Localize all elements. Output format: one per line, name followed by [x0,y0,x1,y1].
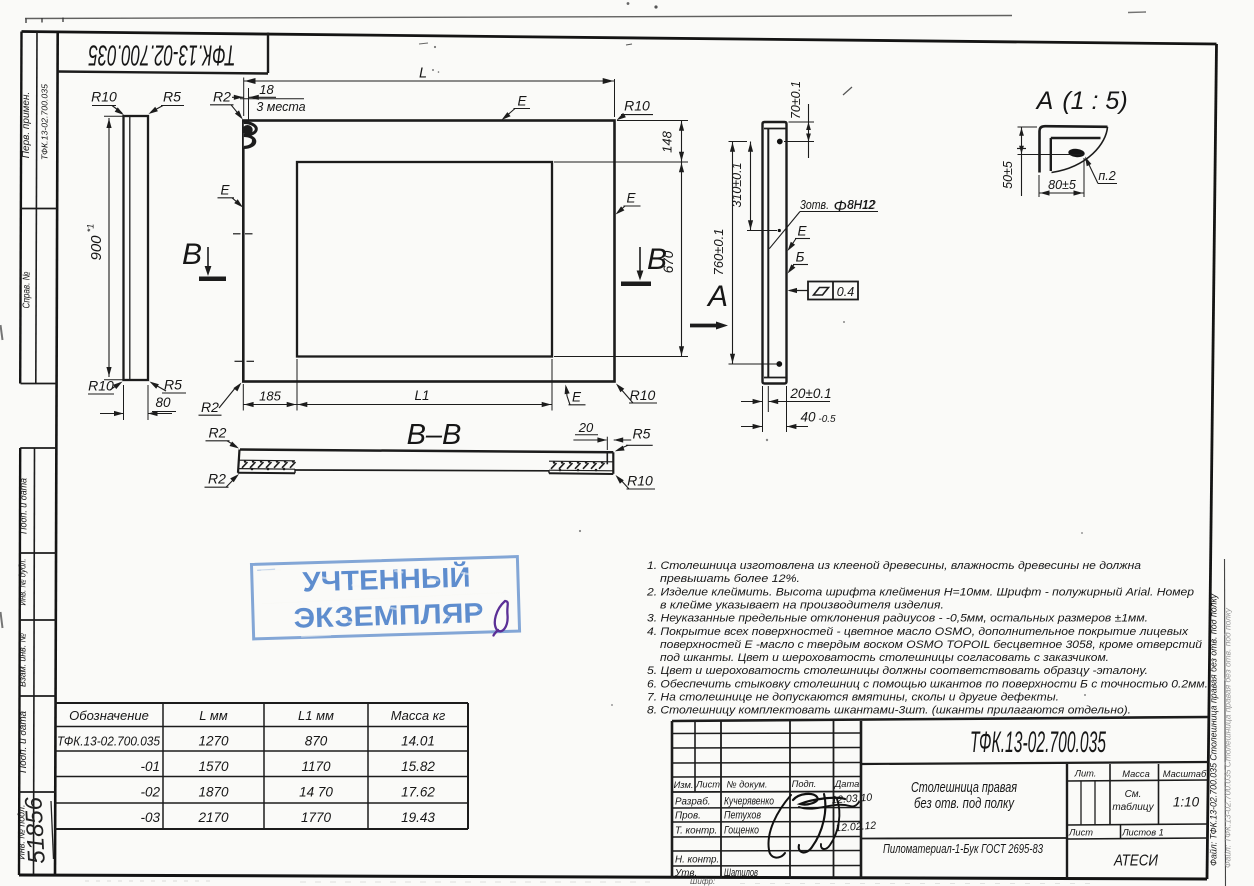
svg-text:51856: 51856 [20,796,50,865]
svg-text:E: E [220,183,230,198]
svg-text:R5: R5 [164,377,182,393]
svg-text:Масса кг: Масса кг [391,708,446,723]
svg-text:70±0.1: 70±0.1 [789,81,803,119]
svg-text:B: B [647,243,667,276]
svg-text:Б: Б [796,250,805,265]
svg-text:п.2: п.2 [1098,169,1115,183]
svg-text:Листов 1: Листов 1 [1121,828,1164,838]
svg-text:0.4: 0.4 [837,285,854,299]
svg-text:-03: -03 [140,810,160,825]
svg-text:R2: R2 [209,425,227,441]
svg-text:Т. контр.: Т. контр. [675,826,717,837]
svg-text:Лит.: Лит. [1074,769,1097,779]
svg-text:-02: -02 [140,785,160,800]
svg-text:B–B: B–B [407,419,462,451]
svg-text:1570: 1570 [198,759,229,774]
svg-text:5. Цвет и шероховатость столеш: 5. Цвет и шероховатость столешницы должн… [647,665,1148,677]
svg-text:ТФК.13-02.700.035: ТФК.13-02.700.035 [970,726,1106,759]
svg-text:6. Обеспечить стыковку столешн: 6. Обеспечить стыковку столешниц с помощ… [647,678,1208,690]
svg-text:Обозначение: Обозначение [69,708,149,723]
svg-text:E: E [797,224,807,239]
svg-text:8H12: 8H12 [847,198,876,212]
svg-text:17.62: 17.62 [401,785,435,800]
svg-text:Лист: Лист [695,780,720,790]
svg-text:R2: R2 [208,471,226,487]
svg-text:E: E [626,191,636,206]
svg-text:Изм.: Изм. [674,780,694,790]
svg-text:148: 148 [660,130,675,152]
svg-text:80: 80 [155,395,171,410]
svg-text:Дата: Дата [834,779,860,789]
svg-text:R10: R10 [624,98,650,114]
svg-text:20±0.1: 20±0.1 [789,386,831,401]
svg-text:без отв. под полку: без отв. под полку [914,796,1015,812]
svg-text:2170: 2170 [197,810,229,825]
svg-text:1170: 1170 [301,759,331,774]
svg-text:Φ: Φ [834,199,847,216]
svg-text:14 70: 14 70 [299,785,333,800]
svg-text:15.82: 15.82 [401,759,435,774]
svg-text:Перв. примен.: Перв. примен. [21,92,32,158]
svg-text:7. На столешнице не допускаютс: 7. На столешнице не допускаются вмятины,… [647,692,1059,704]
svg-text:А: А [1035,87,1054,115]
svg-text:в клейме указывает на производ: в клейме указывает на производителя изде… [660,599,944,611]
svg-text:19.43: 19.43 [401,810,435,825]
svg-text:под шканты. Цвет и шероховатос: под шканты. Цвет и шероховатость столешн… [660,652,1109,664]
svg-text:1. Столешница изготовлена из к: 1. Столешница изготовлена из клееной дре… [647,560,1141,572]
svg-text:R2: R2 [213,89,231,105]
svg-text:Гощенко: Гощенко [724,825,759,837]
svg-text:ТФК.13-02.700.035: ТФК.13-02.700.035 [88,39,236,71]
svg-text:поверхностей Е -масло с тверды: поверхностей Е -масло с твердым воском O… [660,639,1203,651]
svg-text:R10: R10 [627,473,653,489]
svg-text:2. Изделие клеймить. Высота шр: 2. Изделие клеймить. Высота шрифта клейм… [646,586,1194,598]
svg-text:ЭКЗЕМПЛЯР: ЭКЗЕМПЛЯР [293,597,484,634]
svg-text:50±5: 50±5 [1001,161,1015,189]
svg-text:Кучерявенко: Кучерявенко [724,796,774,808]
svg-text:14.01: 14.01 [401,734,435,749]
svg-text:3отв.: 3отв. [800,197,829,212]
svg-text:Н. контр.: Н. контр. [675,855,719,866]
svg-text:Масса: Масса [1122,769,1150,779]
svg-text:*1: *1 [86,224,96,233]
svg-text:1770: 1770 [301,810,332,825]
svg-text:L1 мм: L1 мм [298,708,334,723]
svg-text:E: E [517,94,527,109]
svg-text:40: 40 [800,410,816,425]
svg-text:ТФК.13-02.700.035: ТФК.13-02.700.035 [57,734,161,749]
svg-text:-0.5: -0.5 [818,414,836,425]
svg-text:80±5: 80±5 [1048,178,1076,192]
svg-text:Пиломатериал-1-Бук ГОСТ 2695-8: Пиломатериал-1-Бук ГОСТ 2695-83 [883,841,1044,856]
svg-text:Разраб.: Разраб. [675,797,710,808]
svg-text:R5: R5 [633,426,651,442]
svg-text:Инв. № дубл.: Инв. № дубл. [18,559,29,606]
svg-text:1870: 1870 [198,785,229,800]
svg-text:B: B [182,238,202,271]
svg-text:R10: R10 [630,387,656,403]
svg-text:1270: 1270 [198,734,229,749]
svg-text:3 места: 3 места [256,100,305,114]
svg-text:20: 20 [578,420,594,435]
svg-text:(1 : 5): (1 : 5) [1062,87,1127,115]
svg-text:900: 900 [88,235,105,261]
svg-text:Справ. №: Справ. № [22,271,33,308]
svg-text:Файл: ТФК.13-02.700.035 Столеш: Файл: ТФК.13-02.700.035 Столешница права… [1223,607,1233,868]
svg-text:-01: -01 [140,759,160,774]
svg-text:А: А [706,280,728,313]
svg-text:3. Неуказанные предельные откл: 3. Неуказанные предельные отклонения рад… [647,613,1148,625]
svg-text:ТФК.13-02.700.035: ТФК.13-02.700.035 [41,83,50,160]
svg-text:R2: R2 [201,399,219,415]
svg-text:Столешница правая: Столешница правая [911,780,1017,796]
svg-text:870: 870 [305,734,328,749]
svg-text:L1: L1 [414,388,429,403]
svg-text:Файл: ТФК.13-02.700.035 Столеш: Файл: ТФК.13-02.700.035 Столешница права… [1209,594,1219,866]
svg-text:См.: См. [1125,789,1142,800]
svg-text:№ докум.: № докум. [727,780,768,790]
svg-text:Подп. и дата: Подп. и дата [18,711,29,773]
svg-text:R5: R5 [163,89,181,105]
svg-text:4. Покрытие всех поверхностей: 4. Покрытие всех поверхностей - цветное … [647,626,1189,638]
svg-text:760±0.1: 760±0.1 [711,229,726,276]
svg-text:Масштаб: Масштаб [1163,769,1207,779]
svg-text:таблицу: таблицу [1112,801,1154,813]
svg-text:Взам. инв. №: Взам. инв. № [18,633,29,687]
svg-text:R10: R10 [91,89,117,105]
svg-text:18: 18 [259,82,274,97]
svg-text:Петухов: Петухов [724,810,761,822]
svg-text:L мм: L мм [199,708,228,723]
svg-text:Лист: Лист [1068,828,1093,838]
svg-text:R10: R10 [88,378,114,394]
svg-text:1:10: 1:10 [1173,795,1200,810]
svg-text:Шатилов: Шатилов [724,867,758,879]
svg-text:8. Столешницу комплектовать шк: 8. Столешницу комплектовать шкантами-3шт… [647,705,1131,717]
svg-text:превышать более 12%.: превышать более 12%. [660,573,800,585]
svg-text:185: 185 [259,389,281,404]
svg-text:Пров.: Пров. [675,811,701,822]
svg-text:АТЕСИ: АТЕСИ [1113,853,1158,870]
svg-text:L: L [419,66,427,82]
svg-text:Подп.: Подп. [792,779,817,789]
svg-text:Шифр:: Шифр: [690,877,715,886]
svg-text:E: E [572,390,582,405]
svg-text:Подп. и дата: Подп. и дата [19,478,30,534]
